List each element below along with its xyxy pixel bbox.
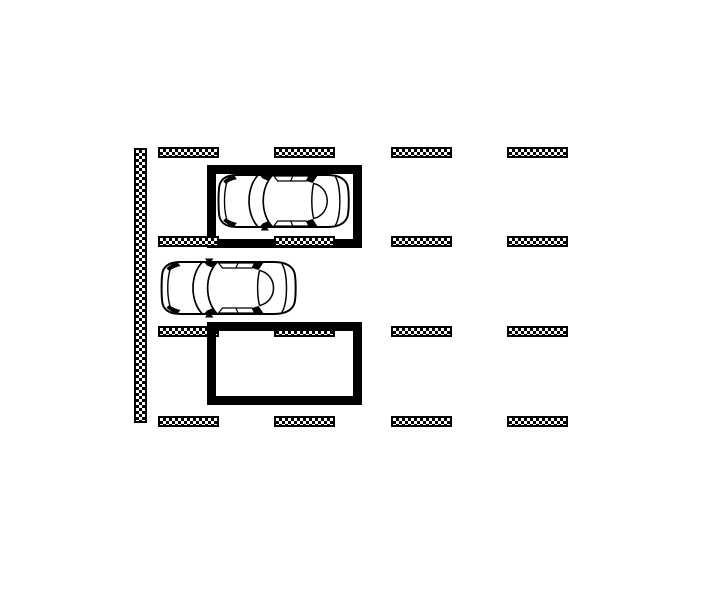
curb-marker-r4-c3 [391,416,452,427]
curb-marker-r2-c3 [391,236,452,247]
curb-marker-r1-c3 [391,147,452,158]
curb-marker-r2-c1 [158,236,219,247]
curb-marker-r1-c2 [274,147,335,158]
side-wall [134,148,147,423]
stall-empty-outline [207,322,362,405]
curb-marker-r4-c1 [158,416,219,427]
curb-marker-r4-c4 [507,416,568,427]
car-maneuvering [159,258,299,318]
curb-marker-r2-c4 [507,236,568,247]
curb-marker-r2-c2 [274,236,335,247]
car-parked [216,171,352,231]
curb-marker-r1-c1 [158,147,219,158]
curb-marker-r4-c2 [274,416,335,427]
parking-diagram [0,0,720,591]
curb-marker-r3-c4 [507,326,568,337]
curb-marker-r1-c4 [507,147,568,158]
curb-marker-r3-c3 [391,326,452,337]
